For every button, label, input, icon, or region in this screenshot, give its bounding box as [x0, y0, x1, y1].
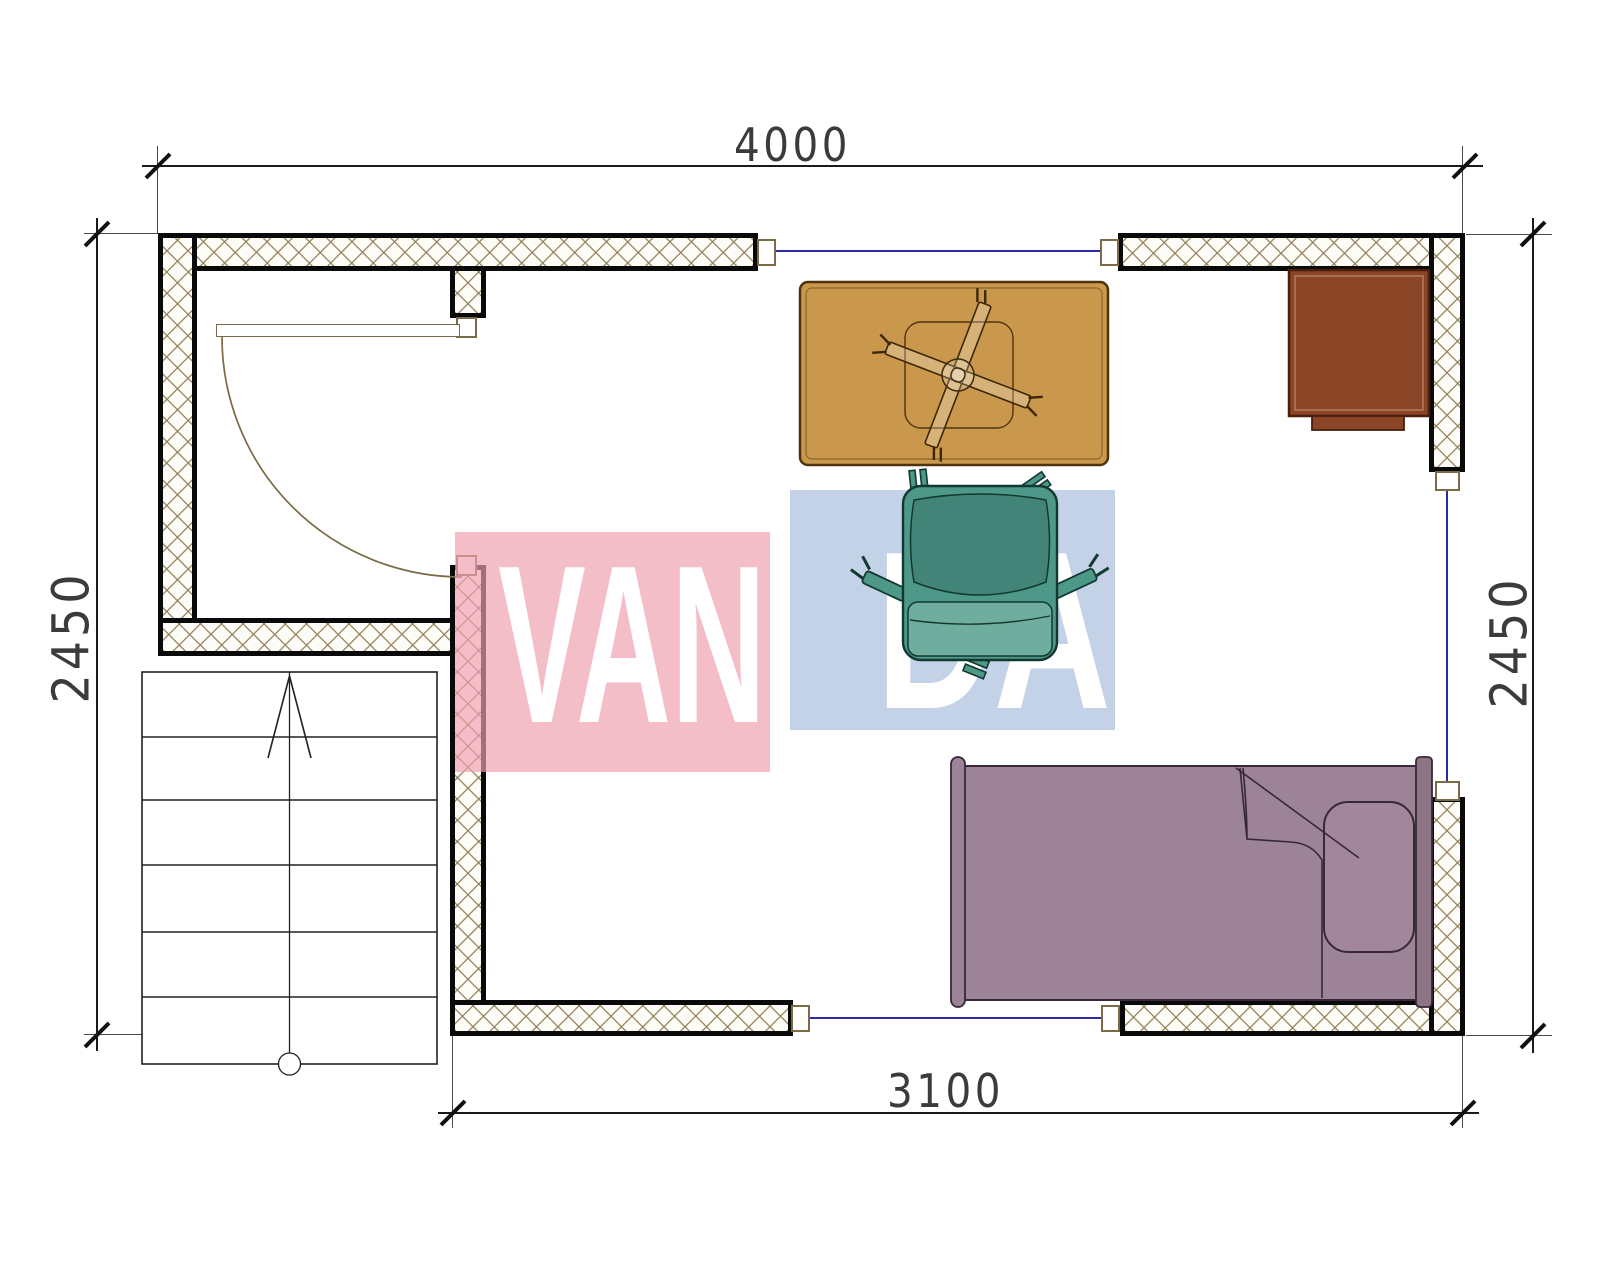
door-swing-arc	[222, 337, 462, 577]
bed	[951, 757, 1432, 1007]
chair-seat	[908, 602, 1052, 656]
bed-pillow	[1324, 802, 1414, 952]
bed-headboard	[1416, 757, 1432, 1007]
table	[800, 260, 1108, 488]
chair-backrest	[911, 494, 1050, 595]
nightstand-drawer	[1312, 416, 1404, 430]
nightstand-top	[1289, 270, 1429, 416]
staircase	[142, 672, 437, 1075]
stairs-start-circle	[279, 1053, 301, 1075]
plan-drawing-layer: VAN DA	[0, 0, 1600, 1280]
floor-plan-canvas: 4000 3100 2450 2450	[0, 0, 1600, 1280]
nightstand	[1289, 270, 1429, 430]
bed-footboard	[951, 757, 965, 1007]
watermark-text-van: VAN	[498, 518, 766, 770]
